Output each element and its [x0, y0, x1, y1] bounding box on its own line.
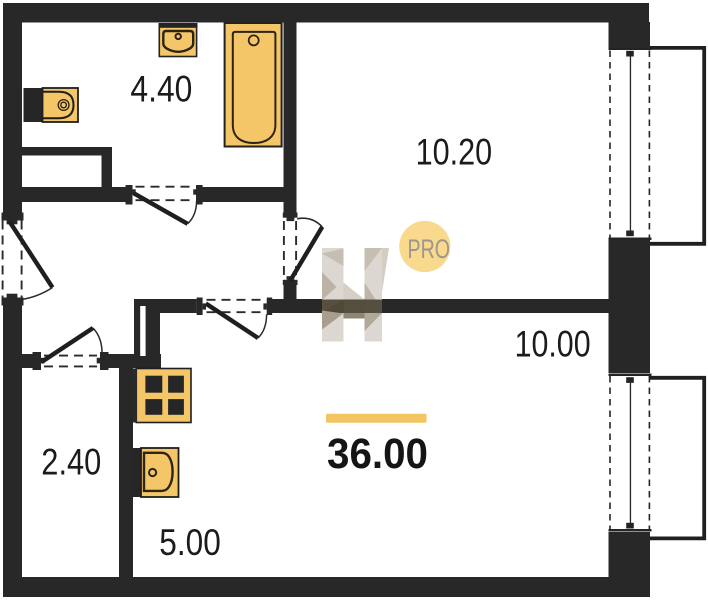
- svg-text:4.40: 4.40: [130, 69, 192, 110]
- svg-text:10.00: 10.00: [515, 324, 591, 365]
- svg-text:PRO: PRO: [408, 234, 451, 264]
- svg-text:36.00: 36.00: [327, 430, 428, 478]
- svg-text:10.20: 10.20: [416, 132, 493, 173]
- svg-text:2.40: 2.40: [41, 442, 101, 483]
- svg-text:5.00: 5.00: [159, 522, 221, 563]
